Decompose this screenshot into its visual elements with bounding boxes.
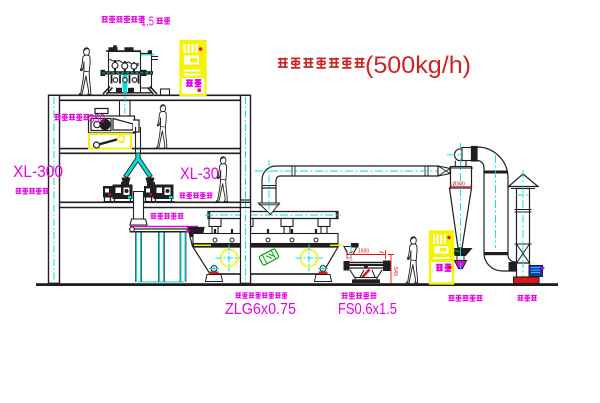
svg-text:545: 545 [392,267,398,276]
svg-text:1.5: 1.5 [141,14,154,29]
svg-text:350: 350 [89,112,105,126]
svg-text:75: 75 [348,257,354,262]
svg-text:Ø300: Ø300 [453,182,465,188]
svg-text:ZLG6x0.75: ZLG6x0.75 [225,301,296,318]
svg-text:XL-300: XL-300 [13,163,63,181]
svg-text:1500: 1500 [358,249,369,255]
svg-text:FS0.6x1.5: FS0.6x1.5 [338,301,397,318]
svg-text:(500kg/h): (500kg/h) [365,52,471,79]
